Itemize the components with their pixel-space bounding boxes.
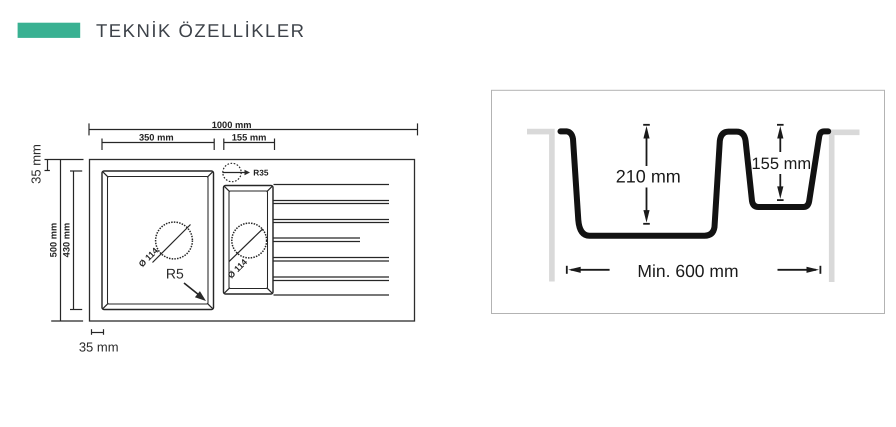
svg-text:500 mm: 500 mm (48, 223, 58, 258)
svg-text:430 mm: 430 mm (61, 223, 71, 258)
svg-text:Ø 114: Ø 114 (137, 245, 161, 269)
svg-text:210 mm: 210 mm (616, 167, 681, 187)
svg-text:155 mm: 155 mm (751, 155, 811, 173)
svg-text:350 mm: 350 mm (139, 132, 174, 142)
svg-text:35 mm: 35 mm (79, 339, 119, 354)
svg-text:R35: R35 (253, 168, 269, 178)
svg-text:Min. 600 mm: Min. 600 mm (637, 261, 738, 281)
svg-text:TEKNİK ÖZELLİKLER: TEKNİK ÖZELLİKLER (96, 20, 306, 41)
svg-text:R5: R5 (166, 266, 184, 282)
svg-text:35 mm: 35 mm (29, 144, 44, 184)
svg-text:1000 mm: 1000 mm (212, 120, 252, 130)
svg-text:155 mm: 155 mm (232, 132, 267, 142)
